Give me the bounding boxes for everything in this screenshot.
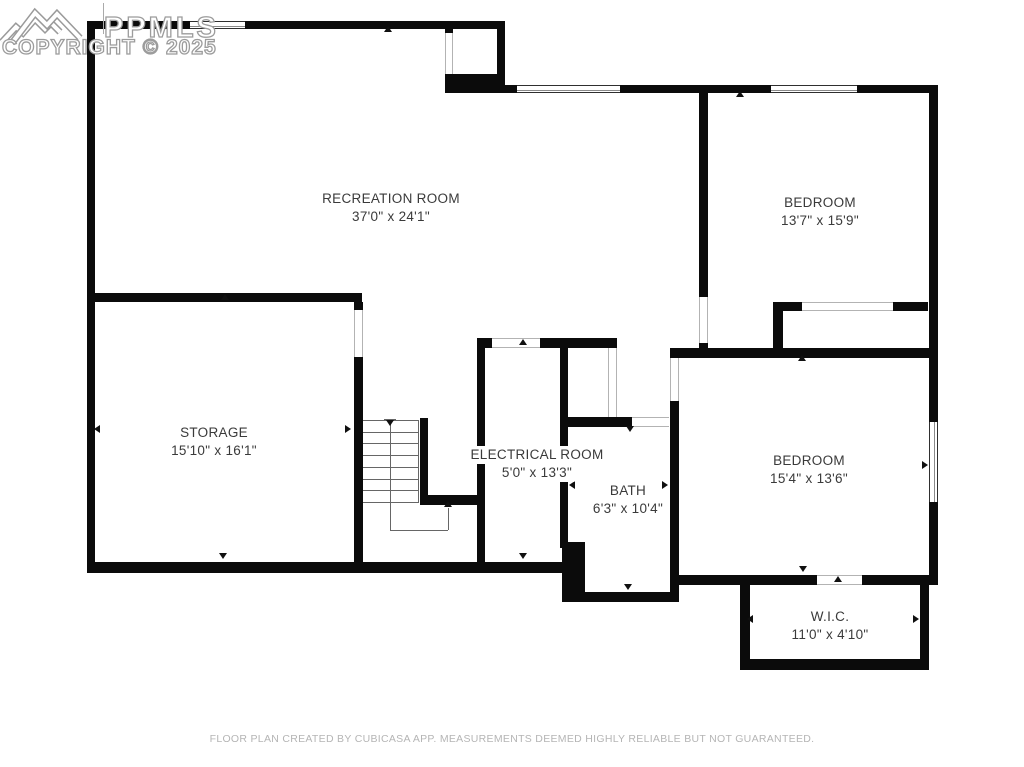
right-arrow-marker <box>913 615 919 623</box>
wall-segment <box>87 21 505 29</box>
room-name: BEDROOM <box>771 452 847 470</box>
stair-edge-line <box>418 420 419 503</box>
room-dimensions: 15'10" x 16'1" <box>169 442 259 460</box>
floorplan-page: RECREATION ROOM37'0" x 24'1"BEDROOM13'7"… <box>0 0 1024 767</box>
door-opening <box>670 358 679 401</box>
wall-segment <box>354 302 363 310</box>
room-dimensions: 13'7" x 15'9" <box>779 212 861 230</box>
down-arrow-marker <box>799 566 807 572</box>
wall-segment <box>87 562 563 573</box>
wall-segment <box>560 338 568 548</box>
wall-segment <box>670 401 679 602</box>
wall-segment <box>740 659 929 670</box>
room-label: W.I.C.11'0" x 4'10" <box>790 608 871 644</box>
left-arrow-marker <box>569 481 575 489</box>
wall-segment <box>562 542 585 602</box>
stair-walkline <box>448 508 449 530</box>
room-name: W.I.C. <box>809 608 852 626</box>
door-opening <box>608 348 617 417</box>
wall-segment <box>420 418 428 505</box>
room-dimensions: 6'3" x 10'4" <box>591 500 665 518</box>
window-pane-line <box>771 90 857 91</box>
window-pane-line <box>934 422 935 502</box>
door-opening <box>445 33 453 74</box>
room-name: RECREATION ROOM <box>320 190 462 208</box>
room-name: BEDROOM <box>782 194 858 212</box>
wall-segment <box>671 575 929 585</box>
room-label: BEDROOM13'7" x 15'9" <box>779 194 861 230</box>
door-opening <box>492 338 540 348</box>
wall-segment <box>540 338 617 348</box>
wall-segment <box>354 357 363 573</box>
down-arrow-marker <box>624 584 632 590</box>
room-dimensions: 5'0" x 13'3" <box>500 464 574 482</box>
left-arrow-marker <box>94 425 100 433</box>
down-arrow-marker <box>386 420 394 426</box>
right-arrow-marker <box>345 425 351 433</box>
up-arrow-marker <box>798 355 806 361</box>
up-arrow-marker <box>384 26 392 32</box>
room-name: BATH <box>608 482 648 500</box>
down-arrow-marker <box>519 553 527 559</box>
stair-walkline <box>390 424 391 530</box>
up-arrow-marker <box>834 576 842 582</box>
window-pane-line <box>190 26 245 27</box>
wall-segment <box>893 302 928 311</box>
door-opening <box>699 297 708 343</box>
watermark-divider <box>103 3 104 34</box>
up-arrow-marker <box>736 91 744 97</box>
door-opening <box>632 417 669 427</box>
room-name: STORAGE <box>178 424 250 442</box>
room-label: BEDROOM15'4" x 13'6" <box>768 452 850 488</box>
wall-segment <box>445 21 453 33</box>
window-pane-line <box>517 90 620 91</box>
room-name: ELECTRICAL ROOM <box>468 446 605 464</box>
door-opening <box>354 310 363 357</box>
down-arrow-marker <box>626 426 634 432</box>
wall-segment <box>560 417 632 427</box>
left-arrow-marker <box>747 615 753 623</box>
window <box>929 422 938 502</box>
wall-segment <box>477 338 492 348</box>
room-label: RECREATION ROOM37'0" x 24'1" <box>320 190 462 226</box>
room-label: BATH6'3" x 10'4" <box>591 482 665 518</box>
wall-segment <box>445 74 505 93</box>
footer-disclaimer: FLOOR PLAN CREATED BY CUBICASA APP. MEAS… <box>0 733 1024 745</box>
wall-segment <box>920 575 929 670</box>
room-dimensions: 11'0" x 4'10" <box>790 626 871 644</box>
up-arrow-marker <box>444 501 452 507</box>
wall-segment <box>497 21 505 93</box>
wall-segment <box>699 343 708 353</box>
window <box>517 85 620 93</box>
up-arrow-marker <box>221 294 229 300</box>
wall-segment <box>929 85 938 585</box>
room-label: STORAGE15'10" x 16'1" <box>169 424 259 460</box>
up-arrow-marker <box>519 339 527 345</box>
door-opening <box>802 302 893 311</box>
right-arrow-marker <box>922 461 928 469</box>
wall-segment <box>583 592 679 602</box>
window <box>190 21 245 29</box>
window <box>771 85 857 93</box>
watermark-copyright: COPYRIGHT © 2025 <box>2 36 217 60</box>
room-label: ELECTRICAL ROOM5'0" x 13'3" <box>468 446 605 482</box>
stair-walkline <box>390 530 448 531</box>
wall-segment <box>773 302 783 352</box>
down-arrow-marker <box>219 553 227 559</box>
room-dimensions: 15'4" x 13'6" <box>768 470 850 488</box>
room-dimensions: 37'0" x 24'1" <box>350 208 432 226</box>
wall-segment <box>699 93 708 297</box>
